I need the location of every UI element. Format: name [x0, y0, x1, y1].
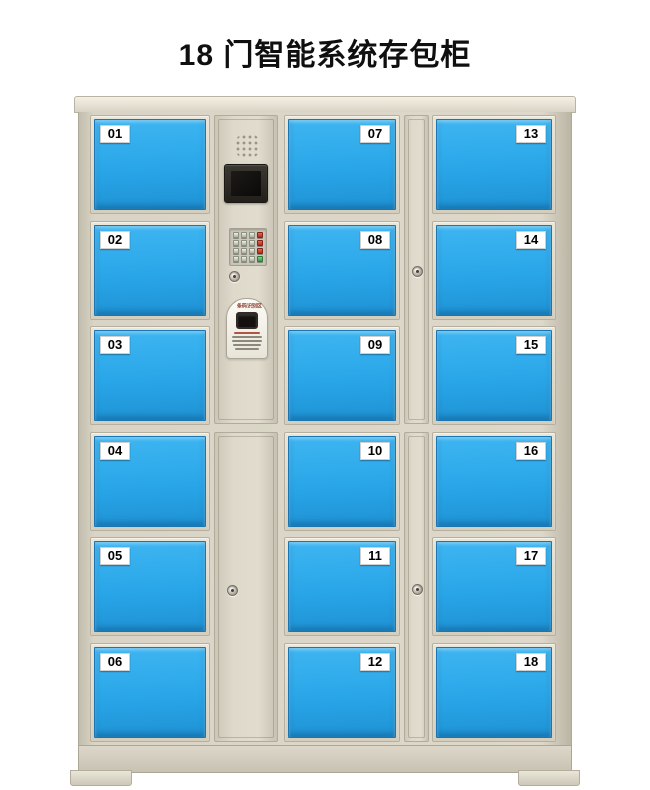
keyhole-lock-icon [412, 266, 423, 277]
scanner-label: 条码识别区 [237, 304, 257, 309]
keypad-key [257, 256, 263, 262]
keyhole-lock-icon [412, 584, 423, 595]
door-panel: 16 [436, 436, 552, 527]
locker-door-05: 05 [90, 537, 210, 636]
door-number-badge: 01 [100, 125, 130, 143]
door-number-badge: 02 [100, 231, 130, 249]
door-number-badge: 12 [360, 653, 390, 671]
locker-door-04: 04 [90, 432, 210, 531]
door-panel: 02 [94, 225, 206, 316]
door-number-badge: 18 [516, 653, 546, 671]
door-panel: 08 [288, 225, 396, 316]
locker-door-02: 02 [90, 221, 210, 320]
locker-door-13: 13 [432, 115, 556, 214]
keypad-key [241, 256, 247, 262]
locker-door-12: 12 [284, 643, 400, 742]
cabinet-base [78, 745, 572, 773]
door-panel: 15 [436, 330, 552, 421]
product-photo-smart-locker: 18 门智能系统存包柜 01 02 03 04 05 06 07 08 09 1… [0, 0, 650, 790]
keypad-key [233, 232, 239, 238]
control-panel: 条码识别区 [214, 115, 278, 424]
scanner-window [236, 312, 258, 329]
lock-strip-upper [404, 115, 429, 424]
door-number-badge: 07 [360, 125, 390, 143]
keypad-key [233, 248, 239, 254]
locker-door-08: 08 [284, 221, 400, 320]
door-number-badge: 06 [100, 653, 130, 671]
locker-door-03: 03 [90, 326, 210, 425]
keypad-key [257, 232, 263, 238]
keypad-key [233, 256, 239, 262]
keypad-key [233, 240, 239, 246]
door-panel: 05 [94, 541, 206, 632]
keypad-key [257, 248, 263, 254]
keypad-key [257, 240, 263, 246]
locker-door-06: 06 [90, 643, 210, 742]
door-panel: 06 [94, 647, 206, 738]
keypad [229, 228, 267, 266]
door-number-badge: 05 [100, 547, 130, 565]
keypad-key [241, 240, 247, 246]
lock-strip-lower [404, 432, 429, 742]
locker-door-09: 09 [284, 326, 400, 425]
locker-door-07: 07 [284, 115, 400, 214]
scanner-instructions-lines [227, 332, 267, 350]
keyhole-lock-icon [227, 585, 238, 596]
keyhole-lock-icon [229, 271, 240, 282]
door-number-badge: 16 [516, 442, 546, 460]
keypad-key [249, 232, 255, 238]
door-panel: 07 [288, 119, 396, 210]
door-number-badge: 10 [360, 442, 390, 460]
door-number-badge: 17 [516, 547, 546, 565]
barcode-scanner: 条码识别区 [226, 298, 268, 359]
control-column-lower-door [214, 432, 278, 742]
screen-glass [231, 171, 261, 196]
door-number-badge: 11 [360, 547, 390, 565]
door-panel: 01 [94, 119, 206, 210]
door-panel: 17 [436, 541, 552, 632]
door-panel: 12 [288, 647, 396, 738]
door-panel: 14 [436, 225, 552, 316]
locker-door-11: 11 [284, 537, 400, 636]
keypad-key [249, 248, 255, 254]
cabinet-top-cap [74, 96, 576, 113]
door-number-badge: 15 [516, 336, 546, 354]
locker-door-16: 16 [432, 432, 556, 531]
door-number-badge: 04 [100, 442, 130, 460]
locker-door-17: 17 [432, 537, 556, 636]
door-panel: 18 [436, 647, 552, 738]
locker-door-15: 15 [432, 326, 556, 425]
locker-door-10: 10 [284, 432, 400, 531]
locker-door-14: 14 [432, 221, 556, 320]
speaker-icon [234, 133, 261, 159]
door-number-badge: 14 [516, 231, 546, 249]
keypad-key [241, 232, 247, 238]
locker-door-18: 18 [432, 643, 556, 742]
product-title: 18 门智能系统存包柜 [0, 30, 650, 74]
door-number-badge: 03 [100, 336, 130, 354]
door-panel: 09 [288, 330, 396, 421]
keypad-key [249, 240, 255, 246]
door-number-badge: 13 [516, 125, 546, 143]
door-panel: 13 [436, 119, 552, 210]
door-panel: 04 [94, 436, 206, 527]
door-panel: 03 [94, 330, 206, 421]
door-panel: 11 [288, 541, 396, 632]
cabinet-foot-right [518, 770, 580, 786]
door-number-badge: 08 [360, 231, 390, 249]
display-screen [224, 164, 268, 203]
cabinet-foot-left [70, 770, 132, 786]
keypad-key [249, 256, 255, 262]
door-number-badge: 09 [360, 336, 390, 354]
keypad-key [241, 248, 247, 254]
locker-door-01: 01 [90, 115, 210, 214]
door-panel: 10 [288, 436, 396, 527]
